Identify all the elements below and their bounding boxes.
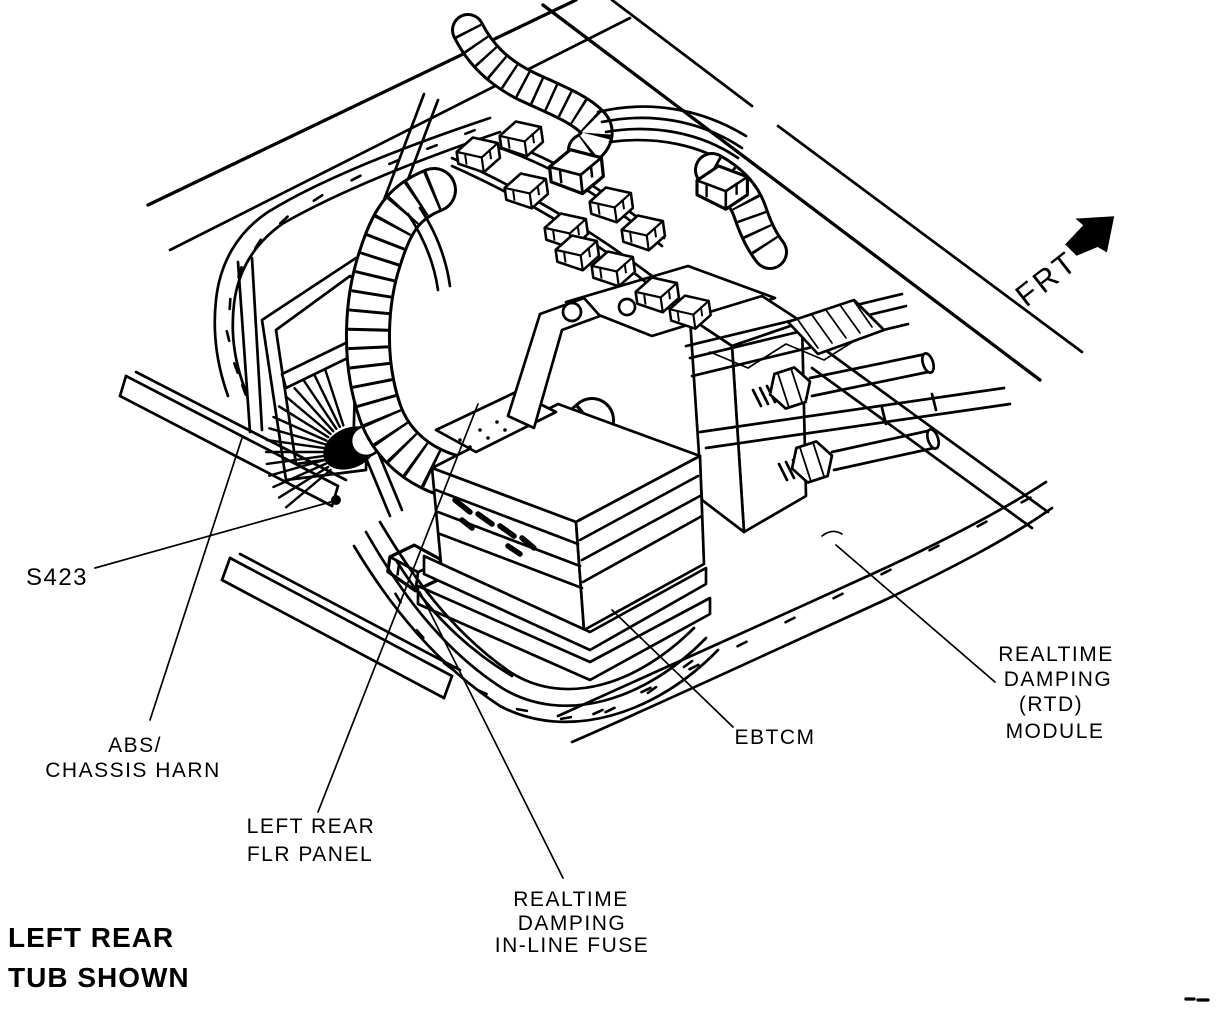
callout-rtd-line3: (RTD) xyxy=(1019,693,1083,716)
frt-label: FRT xyxy=(1009,244,1085,314)
callout-s423: S423 xyxy=(26,564,88,591)
ebtcm-module xyxy=(418,298,710,680)
caption-line1: LEFT REAR xyxy=(8,922,174,953)
callout-floor-panel-line2: FLR PANEL xyxy=(247,843,373,866)
callout-inline-fuse-line2: DAMPING xyxy=(518,912,627,935)
callout-inline-fuse-line3: IN-LINE FUSE xyxy=(495,934,650,957)
callout-abs-harness-line1: ABS/ xyxy=(108,734,162,757)
callout-abs-harness-line2: CHASSIS HARN xyxy=(45,759,221,782)
wiring-diagram-art: FRT S423 ABS/ CHASSIS HARN LEFT REAR FLR… xyxy=(0,0,1216,1010)
harness-connector xyxy=(498,118,545,159)
callout-rtd-line4: MODULE xyxy=(1006,720,1105,743)
callout-ebtcm: EBTCM xyxy=(735,726,816,749)
frt-direction-indicator: FRT xyxy=(1001,199,1129,314)
callout-inline-fuse-line1: REALTIME xyxy=(513,888,628,911)
figure-caption: LEFT REAR TUB SHOWN xyxy=(8,922,190,993)
diagram-page: FRT S423 ABS/ CHASSIS HARN LEFT REAR FLR… xyxy=(0,0,1216,1010)
callout-rtd-line1: REALTIME xyxy=(998,643,1113,666)
callout-rtd-line2: DAMPING xyxy=(1004,668,1113,691)
callout-floor-panel-line1: LEFT REAR xyxy=(247,815,376,838)
page-mark xyxy=(1186,999,1208,1000)
caption-line2: TUB SHOWN xyxy=(8,962,190,993)
